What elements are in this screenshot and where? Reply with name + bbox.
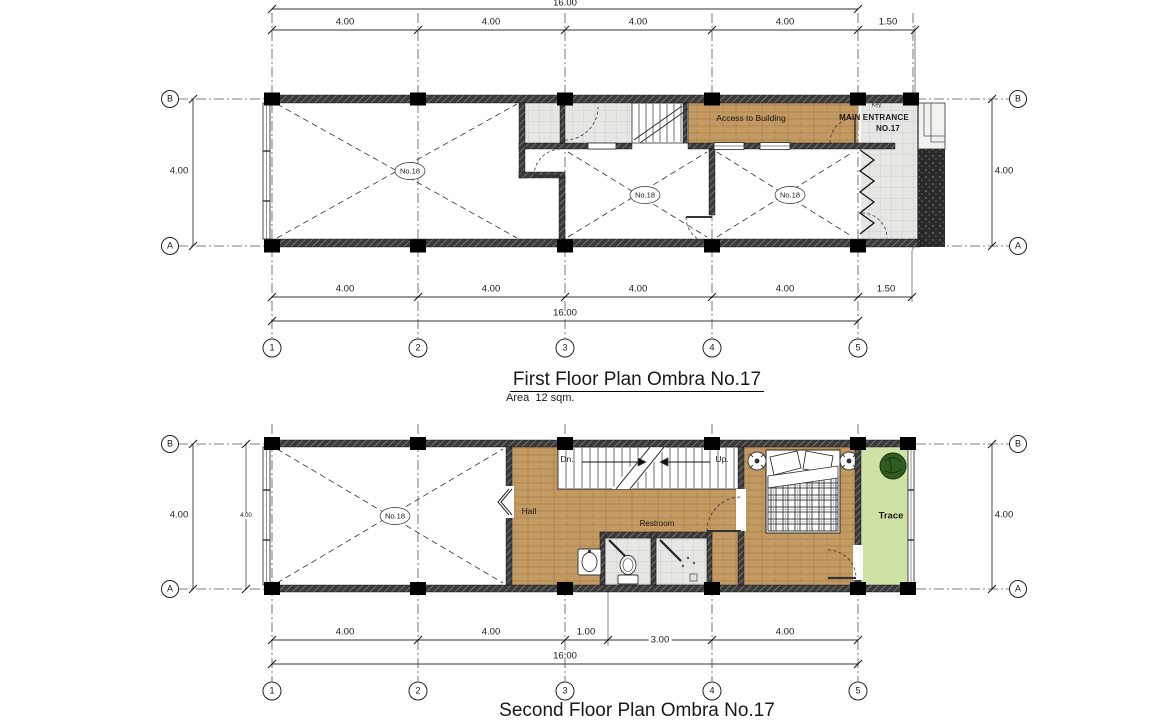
sf-right-dim: 4.00 — [995, 510, 1014, 520]
stair-up-label: Up. — [715, 455, 728, 464]
ff-top-dim: 4.00 — [629, 17, 648, 27]
ff-top-dim: 4.00 — [776, 17, 795, 27]
grid-bubble-3: 3 — [562, 687, 567, 696]
sf-stair — [558, 447, 740, 489]
sf-room-label: No.18 — [385, 512, 405, 520]
ff-planter-hatch — [918, 149, 945, 247]
ff-access-corridor-floor — [688, 103, 858, 143]
ff-bottom-dim: 4.00 — [336, 284, 355, 294]
hall-label: Hall — [522, 507, 537, 516]
grid-bubble-1: 1 — [269, 344, 274, 353]
floorplan-sheet: 16.00 4.00 4.00 4.00 4.00 1.50 4.00 4.00… — [0, 0, 1152, 720]
ff-bottom-dim: 1.50 — [877, 284, 896, 294]
sf-bed — [766, 450, 840, 533]
second-floor-plan — [263, 437, 916, 595]
second-floor-title: Second Floor Plan Ombra No.17 — [496, 701, 778, 720]
ff-top-dim: 4.00 — [482, 17, 501, 27]
ff-lobby-window — [588, 143, 616, 149]
ff-top-dim: 1.50 — [879, 17, 898, 27]
grid-bubble-B: B — [1015, 440, 1021, 449]
main-entrance-label: MAIN ENTRANCE — [839, 114, 909, 122]
grid-bubble-4: 4 — [709, 687, 714, 696]
ff-bottom-dim: 4.00 — [482, 284, 501, 294]
ff-right-dim: 4.00 — [995, 166, 1014, 176]
grid-bubble-A: A — [1015, 242, 1021, 251]
ff-overall-dim-top: 16.00 — [553, 0, 577, 8]
ff-stair — [632, 103, 688, 143]
sf-plant — [880, 453, 906, 479]
grid-bubble-A: A — [167, 585, 173, 594]
ff-bottom-dim: 4.00 — [629, 284, 648, 294]
grid-bubble-B: B — [167, 95, 173, 104]
grid-bubble-5: 5 — [855, 687, 860, 696]
grid-bubble-1: 1 — [269, 687, 274, 696]
sink — [578, 549, 601, 575]
sf-bottom-dim: 4.00 — [482, 627, 501, 637]
grid-bubble-A: A — [1015, 585, 1021, 594]
grid-bubble-2: 2 — [415, 344, 420, 353]
sf-left-dim: 4.00 — [170, 510, 189, 520]
ff-left-dim: 4.00 — [170, 166, 189, 176]
ff-overall-dim-bottom: 16.00 — [553, 308, 577, 318]
terrace-label: Trace — [879, 511, 904, 521]
grid-bubble-5: 5 — [855, 344, 860, 353]
ff-room-label: No.18 — [400, 167, 420, 175]
sf-bottom-dim: 3.00 — [649, 635, 672, 645]
key-label: Key. — [872, 103, 883, 109]
grid-bubble-A: A — [167, 242, 173, 251]
toilet — [618, 556, 638, 585]
grid-bubble-4: 4 — [709, 344, 714, 353]
sf-bottom-dim: 1.00 — [577, 627, 596, 637]
grid-bubble-3: 3 — [562, 344, 567, 353]
stair-down-label: Dn. — [560, 455, 573, 464]
first-floor-title: First Floor Plan Ombra No.17 — [510, 370, 764, 392]
ff-top-dim: 4.00 — [336, 17, 355, 27]
grid-bubble-B: B — [167, 440, 173, 449]
restroom-label: Restroom — [640, 520, 675, 528]
ff-room-label: No.18 — [780, 191, 800, 199]
sf-bottom-dim: 4.00 — [336, 627, 355, 637]
access-to-building-label: Access to Building — [716, 114, 785, 123]
ff-bottom-dim: 4.00 — [776, 284, 795, 294]
grid-bubble-2: 2 — [415, 687, 420, 696]
sf-overall-dim: 16.00 — [553, 651, 577, 661]
first-floor-area-note: Area 12 sqm. — [506, 392, 574, 404]
grid-bubble-B: B — [1015, 95, 1021, 104]
floorplan-drawing — [0, 0, 1152, 720]
sf-left-inner-dim: 4.00 — [239, 513, 253, 519]
ff-room-label: No.18 — [635, 191, 655, 199]
entrance-no-label: NO.17 — [876, 125, 900, 133]
sf-bottom-dim: 4.00 — [776, 627, 795, 637]
